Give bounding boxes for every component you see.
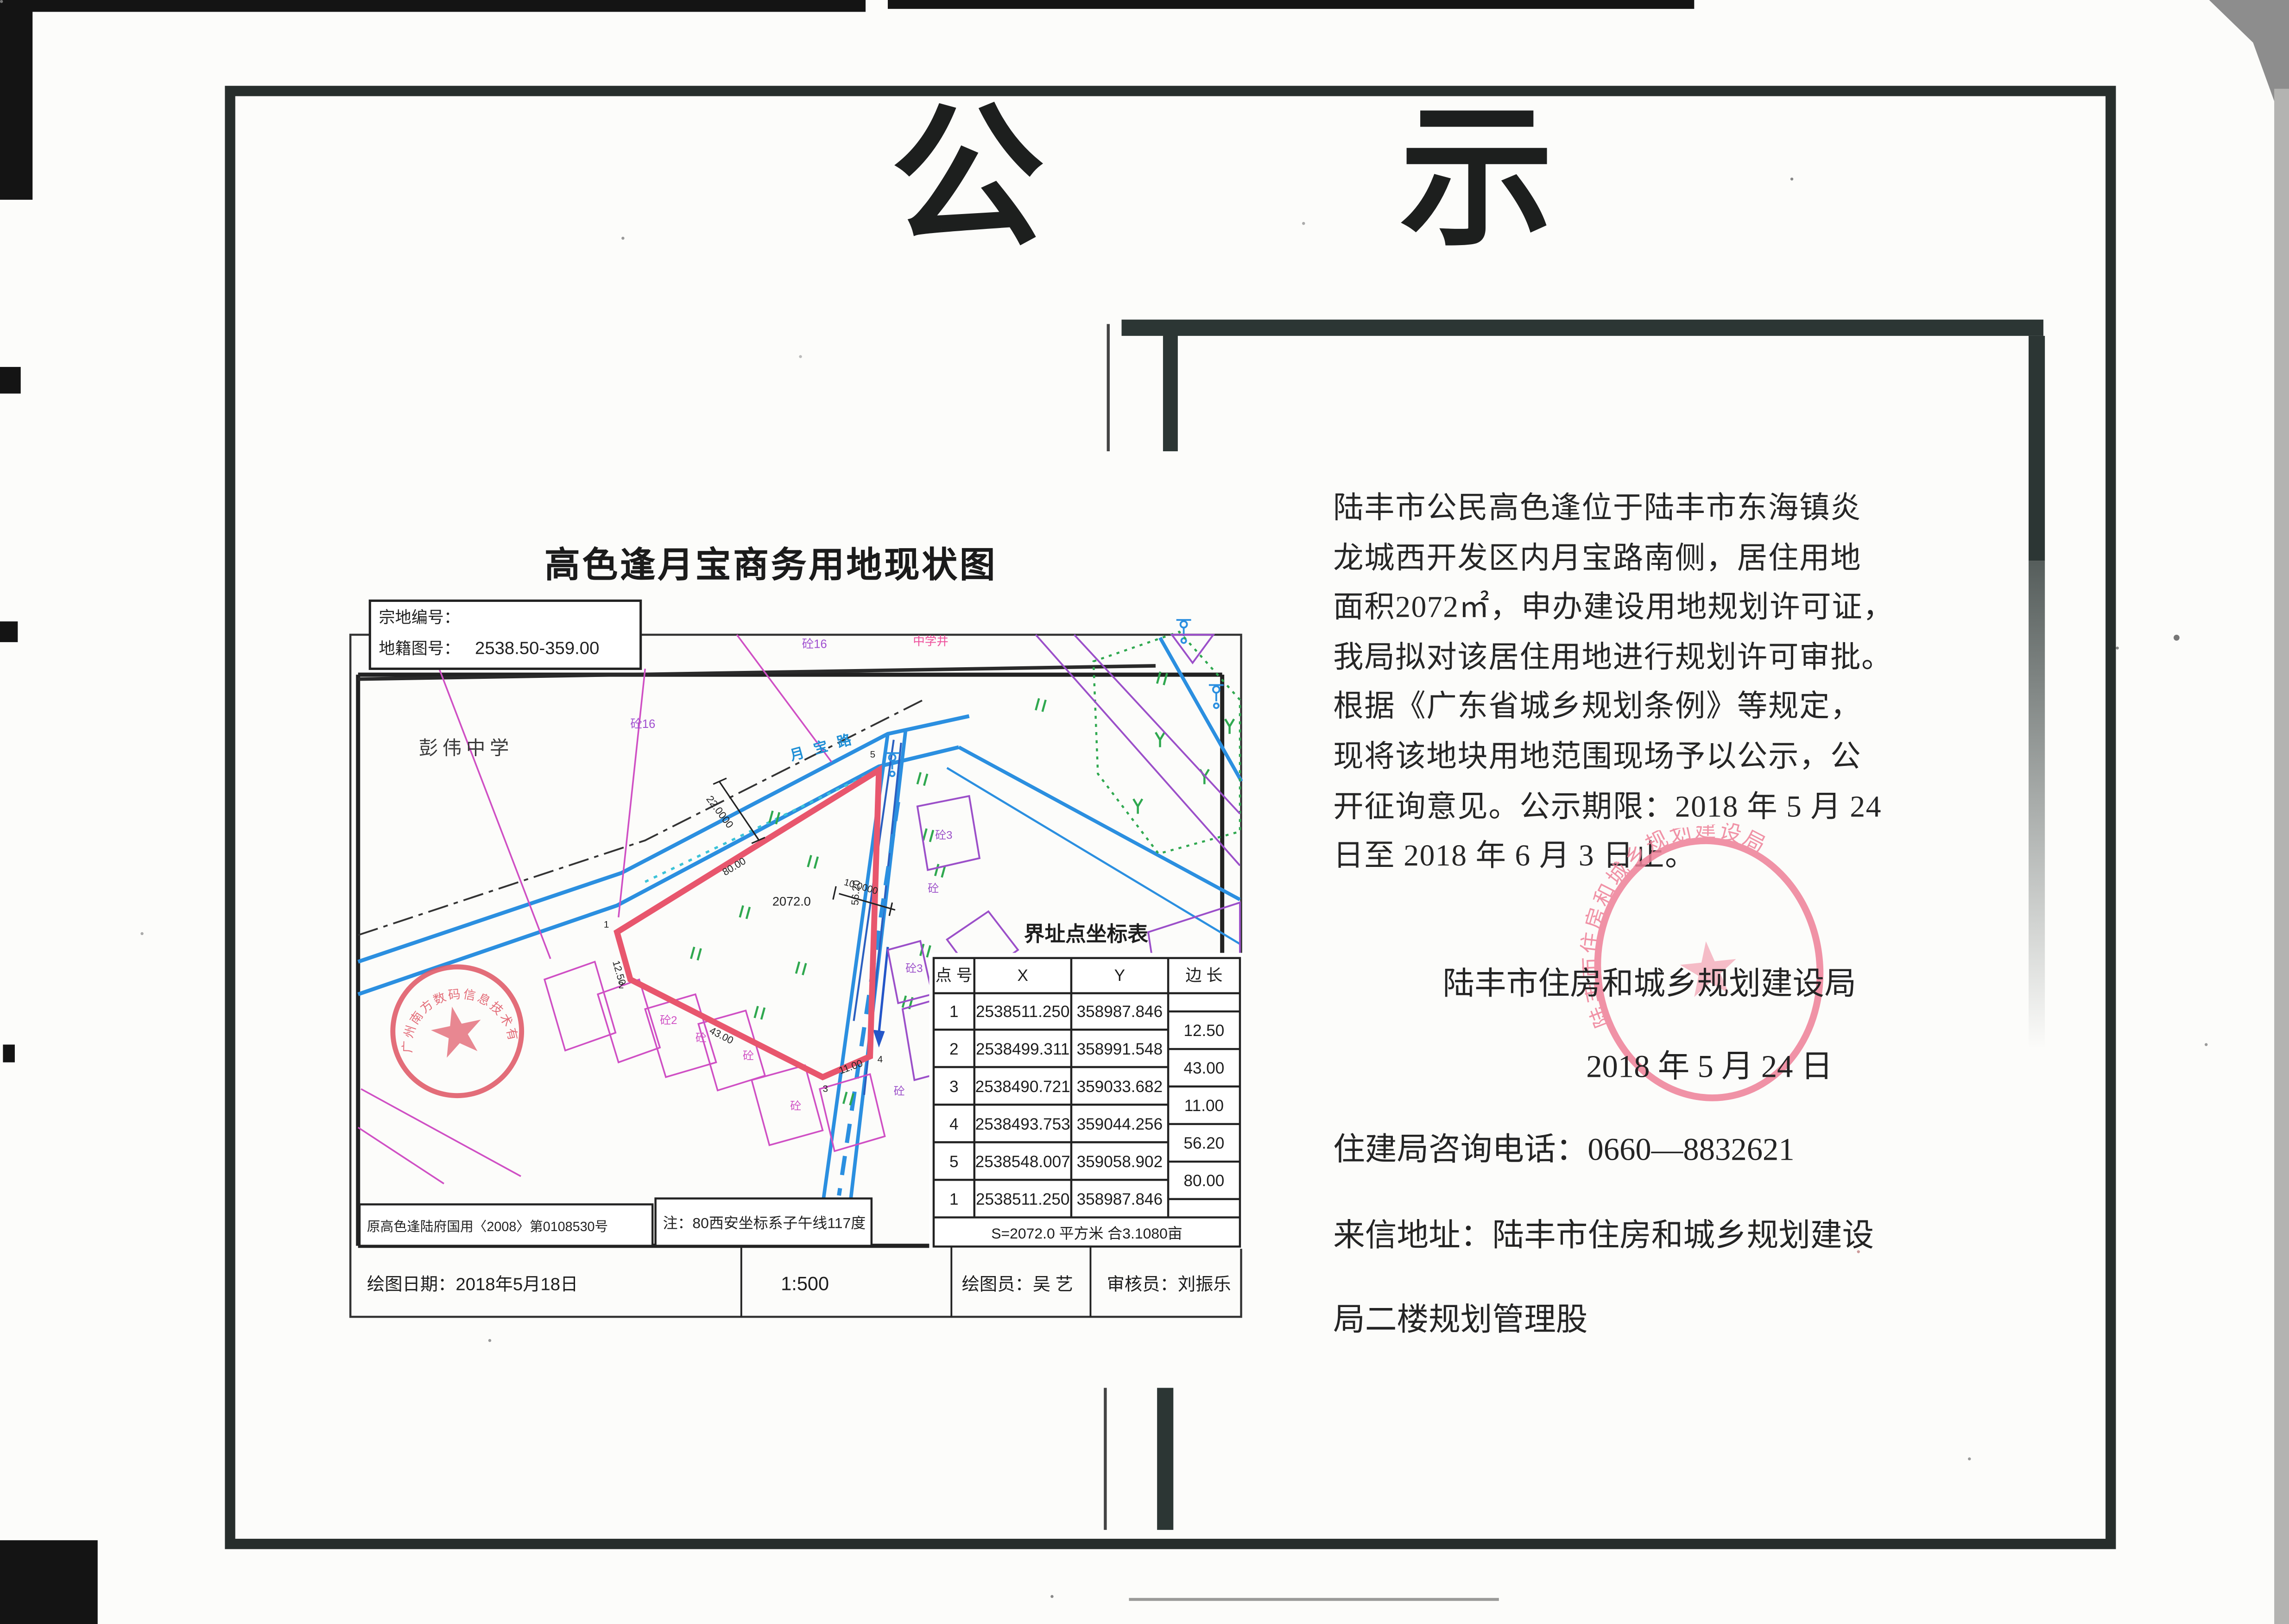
fold-line-bottom-thin: [1104, 1388, 1107, 1530]
scan-blotch-1: [0, 367, 21, 393]
r5-x: 2538511.250: [976, 1190, 1069, 1208]
r0-n: 1: [949, 1003, 959, 1021]
scan-edge-top-right: [888, 0, 1694, 9]
plot-label-7: 砼: [790, 1100, 801, 1112]
fold-bar-bottom-thick: [1157, 1388, 1173, 1530]
edge-val-2: 11.00: [1184, 1097, 1224, 1115]
edge-val-1: 43.00: [1183, 1059, 1224, 1077]
r1-n: 2: [949, 1040, 959, 1058]
notice-line-3: 面积2072㎡，申办建设用地规划许可证，: [1333, 582, 1881, 632]
cadastral-no-label: 地籍图号：: [379, 639, 460, 657]
edge-56: 56.20: [849, 880, 862, 906]
scan-edge-left-strip: [0, 0, 32, 200]
th-edge: 边 长: [1185, 967, 1222, 985]
coordinate-table-title: 界址点坐标表: [1024, 923, 1148, 946]
r5-n: 1: [949, 1190, 959, 1208]
r3-n: 4: [949, 1115, 959, 1133]
edge-val-3: 56.20: [1183, 1134, 1224, 1152]
school-label: 彭伟中学: [419, 737, 513, 759]
r1-x: 2538499.311: [976, 1040, 1069, 1058]
fold-line-top-thin: [1107, 324, 1110, 451]
contact-address-line2: 局二楼规划管理股: [1333, 1295, 1587, 1340]
plot-label-4: 砼2: [660, 1014, 677, 1027]
r3-x: 2538493.753: [975, 1115, 1070, 1133]
r0-y: 358987.846: [1077, 1003, 1163, 1021]
coordinate-table: 界址点坐标表 点 号 X Y 边 长 1 2538511.250 358987.…: [929, 923, 1243, 1249]
signature-date: 2018 年 5 月 24 日: [1586, 1042, 1833, 1087]
scanned-notice-page: 公 示 高色逢月宝商务用地现状图: [0, 0, 2289, 1624]
strip-drafter: 绘图员：吴 艺: [962, 1275, 1073, 1295]
scan-edge-top-left: [0, 0, 866, 12]
plot-label-3: 砼: [894, 1085, 905, 1098]
road-name-label: 月宝路: [788, 728, 863, 764]
notice-line-5: 根据《广东省城乡规划条例》等规定，: [1333, 681, 1881, 732]
border-descender-fade: [2029, 561, 2045, 1049]
table-footer: S=2072.0 平方米 合3.1080亩: [991, 1225, 1182, 1242]
scan-blotch-bottom-left: [0, 1540, 98, 1624]
right-panel-border-descender: [2029, 336, 2045, 561]
contact-address-line1: 来信地址：陆丰市住房和城乡规划建设: [1333, 1210, 1874, 1256]
vertex-5: 5: [870, 749, 876, 760]
th-point: 点 号: [936, 967, 973, 985]
r0-x: 2538511.250: [976, 1003, 1069, 1021]
parcel-area-label: 2072.0: [772, 894, 811, 908]
vertex-3: 3: [822, 1084, 828, 1094]
page-title-char-right: 示: [1400, 104, 1554, 258]
note-text: 注：80西安坐标系子午线117度: [663, 1214, 866, 1231]
plot-label-1: 砼: [928, 883, 939, 895]
edge-val-0: 12.50: [1183, 1022, 1224, 1040]
scan-noise: [0, 0, 3, 3]
scan-blotch-3: [3, 1044, 15, 1062]
th-x: X: [1017, 967, 1028, 985]
notice-line-2: 龙城西开发区内月宝路南侧，居住用地: [1333, 532, 1881, 582]
r3-y: 359044.256: [1077, 1115, 1163, 1133]
strip-checker: 审核员：刘振乐: [1107, 1275, 1231, 1295]
well-label: 中学井: [913, 635, 948, 648]
vertex-4: 4: [878, 1054, 883, 1065]
right-panel-top-border: [1122, 320, 2043, 336]
r2-y: 359033.682: [1077, 1078, 1163, 1096]
notice-line-1: 陆丰市公民高色逢位于陆丰市东海镇炎: [1333, 482, 1881, 533]
cert-number: 原高色逢陆府国用〈2008〉第0108530号: [367, 1220, 608, 1234]
r4-y: 359058.902: [1077, 1153, 1163, 1171]
con16-label-b: 砼16: [802, 638, 827, 651]
parcel-no-label: 宗地编号：: [379, 608, 460, 626]
th-y: Y: [1114, 967, 1125, 985]
parcel-info-box: 宗地编号： 地籍图号： 2538.50-359.00: [370, 600, 640, 669]
r4-x: 2538548.007: [975, 1153, 1070, 1171]
cadastral-no-value: 2538.50-359.00: [475, 638, 599, 658]
strip-scale: 1:500: [781, 1273, 829, 1295]
page-title-char-left: 公: [891, 104, 1044, 258]
plot-label-2: 砼3: [905, 962, 923, 975]
r2-x: 2538490.721: [975, 1078, 1070, 1096]
r4-n: 5: [949, 1153, 959, 1171]
surveyor-stamp: 广州南方数码信息技术有限公司: [375, 949, 540, 1114]
plot-label-6: 砼: [743, 1049, 754, 1062]
map-bottom-boxes: 原高色逢陆府国用〈2008〉第0108530号 注：80西安坐标系子午线117度: [360, 1199, 872, 1246]
r1-y: 358991.548: [1077, 1040, 1163, 1058]
signature-agency: 陆丰市住房和城乡规划建设局: [1442, 959, 1856, 1005]
notice-line-4: 我局拟对该居住用地进行规划许可审批。: [1333, 632, 1881, 682]
scan-blotch-2: [0, 621, 18, 642]
r5-y: 358987.846: [1077, 1190, 1163, 1208]
plot-label-5: 砼: [696, 1032, 707, 1044]
scan-faint-line: [1129, 1598, 1499, 1600]
notice-line-6: 现将该地块用地范围现场予以公示，公: [1333, 731, 1881, 781]
r2-n: 3: [949, 1078, 959, 1096]
map-title: 高色逢月宝商务用地现状图: [544, 536, 997, 588]
vertex-2: 2: [619, 980, 624, 991]
scan-shadow-right: [2274, 89, 2289, 1624]
parcel-boundary: [617, 770, 879, 1077]
stamp-star: [427, 1001, 487, 1060]
plot-label-0: 砼3: [935, 829, 952, 842]
fold-bar-top-thick: [1163, 324, 1178, 451]
vertex-1: 1: [604, 919, 609, 930]
con16-label-a: 砼16: [630, 718, 655, 731]
edge-val-4: 80.00: [1183, 1172, 1224, 1190]
map-footer-strip: 绘图日期：2018年5月18日 1:500 绘图员：吴 艺 审核员：刘振乐: [367, 1246, 1231, 1317]
contact-phone: 住建局咨询电话：0660—8832621: [1333, 1125, 1795, 1170]
strip-date: 绘图日期：2018年5月18日: [367, 1275, 578, 1295]
